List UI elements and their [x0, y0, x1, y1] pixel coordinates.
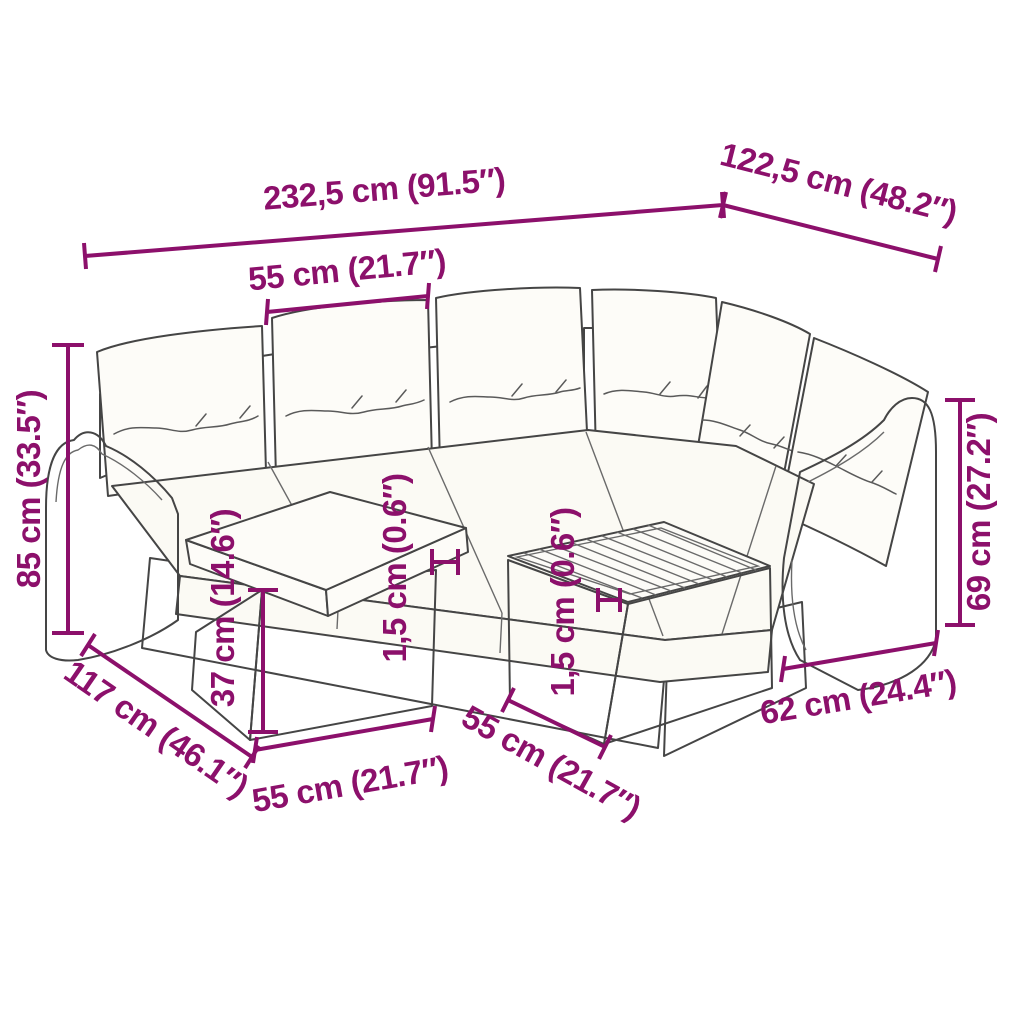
dim-armrest-height: 69 cm (27.2″) [945, 400, 997, 625]
dim-table-width-label: 55 cm (21.7″) [456, 698, 647, 826]
dim-slat-thickness-sofa-label: 1,5 cm (0.6″) [376, 473, 413, 662]
dim-table-depth-label: 62 cm (24.4″) [757, 662, 959, 731]
dim-overall-width-label: 232,5 cm (91.5″) [262, 160, 507, 216]
dim-overall-depth: 122,5 cm (48.2″) [717, 135, 961, 272]
dim-overall-height-label: 85 cm (33.5″) [10, 390, 47, 588]
dim-slat-thickness-table-label: 1,5 cm (0.6″) [544, 507, 581, 696]
dim-overall-depth-label: 122,5 cm (48.2″) [717, 135, 961, 230]
dim-seat-width-label: 55 cm (21.7″) [246, 242, 447, 298]
dimension-diagram: 232,5 cm (91.5″) 122,5 cm (48.2″) 55 cm … [0, 0, 1024, 1024]
dim-footstool-width-label: 55 cm (21.7″) [249, 748, 451, 819]
dim-table-depth: 62 cm (24.4″) [757, 630, 959, 731]
dim-footstool-width: 55 cm (21.7″) [249, 706, 451, 819]
diagram-canvas: 232,5 cm (91.5″) 122,5 cm (48.2″) 55 cm … [0, 0, 1024, 1024]
dim-footstool-height-label: 37 cm (14.6″) [204, 509, 241, 707]
dim-table-width: 55 cm (21.7″) [456, 688, 647, 826]
sofa-line-art [46, 287, 936, 756]
dim-armrest-height-label: 69 cm (27.2″) [960, 413, 997, 611]
